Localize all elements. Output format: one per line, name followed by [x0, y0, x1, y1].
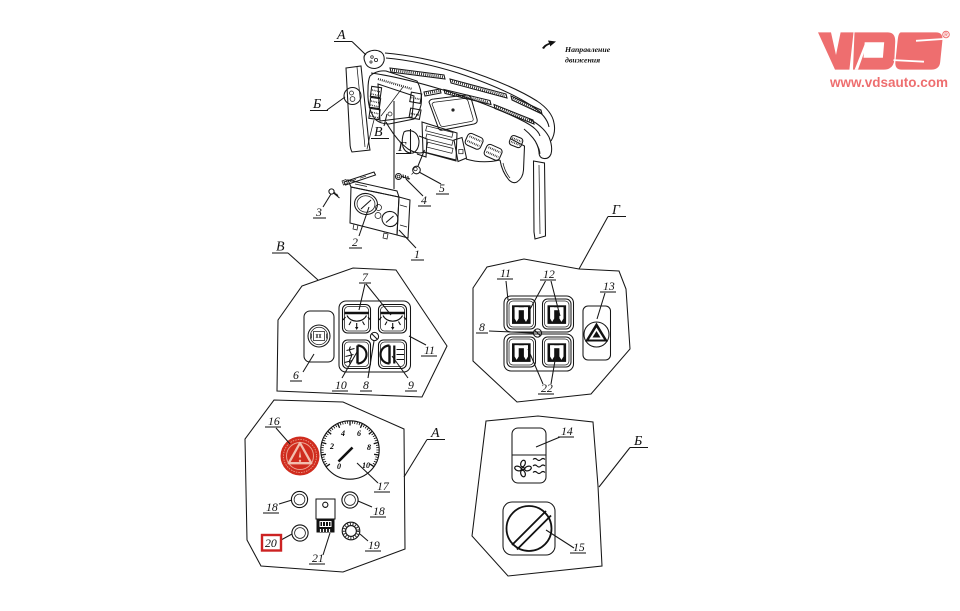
- svg-text:13: 13: [603, 279, 615, 293]
- svg-text:В: В: [276, 240, 285, 255]
- svg-text:движения: движения: [565, 56, 600, 65]
- svg-text:Направление: Направление: [564, 45, 611, 54]
- svg-text:15: 15: [573, 540, 585, 554]
- svg-text:4: 4: [340, 429, 345, 438]
- svg-text:R: R: [944, 33, 948, 39]
- svg-text:21: 21: [312, 551, 324, 565]
- svg-text:Г: Г: [397, 140, 407, 155]
- svg-text:А: А: [336, 28, 346, 43]
- svg-text:Г: Г: [611, 203, 621, 218]
- svg-text:19: 19: [368, 538, 380, 552]
- svg-text:8: 8: [363, 378, 369, 392]
- svg-text:9: 9: [408, 378, 414, 392]
- svg-text:11: 11: [424, 343, 435, 357]
- svg-text:10: 10: [335, 378, 347, 392]
- svg-text:8: 8: [479, 320, 485, 334]
- svg-text:2: 2: [329, 442, 334, 451]
- svg-text:Б: Б: [312, 97, 321, 112]
- svg-text:18: 18: [266, 500, 278, 514]
- svg-text:В: В: [374, 125, 383, 140]
- svg-text:16: 16: [268, 414, 280, 428]
- svg-text:2: 2: [352, 235, 358, 249]
- svg-text:0: 0: [337, 462, 341, 471]
- svg-text:6: 6: [357, 429, 361, 438]
- svg-text:18: 18: [373, 504, 385, 518]
- svg-text:8: 8: [367, 443, 371, 452]
- svg-text:1: 1: [414, 247, 420, 261]
- svg-text:11: 11: [500, 266, 511, 280]
- svg-text:14: 14: [561, 424, 573, 438]
- svg-text:А: А: [430, 426, 440, 441]
- svg-text:17: 17: [377, 479, 390, 493]
- svg-text:4: 4: [421, 193, 427, 207]
- svg-text:6: 6: [293, 368, 299, 382]
- svg-text:5: 5: [439, 181, 445, 195]
- svg-text:www.vdsauto.com: www.vdsauto.com: [829, 75, 948, 90]
- svg-text:20: 20: [265, 536, 277, 550]
- svg-text:12: 12: [543, 267, 555, 281]
- svg-text:Б: Б: [633, 434, 642, 449]
- svg-text:3: 3: [315, 205, 322, 219]
- svg-text:22: 22: [541, 381, 553, 395]
